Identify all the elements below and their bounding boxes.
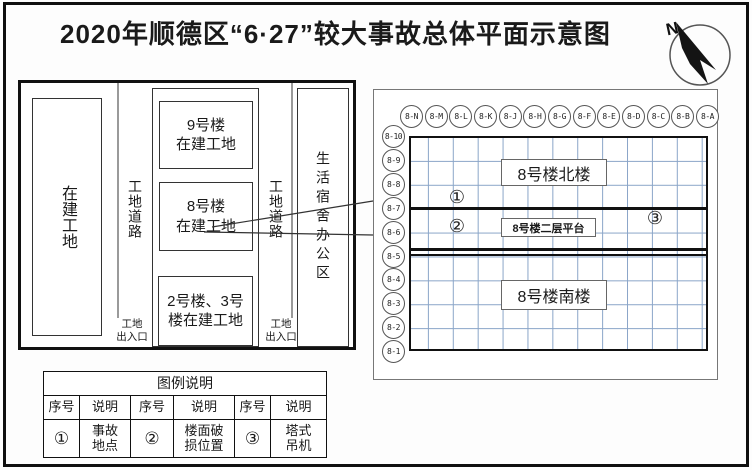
axis-bubble: 8-C [647, 105, 670, 128]
legend-header: 说明 [271, 396, 327, 420]
legend-header: 序号 [235, 396, 271, 420]
axis-bubble: 8-H [523, 105, 546, 128]
axis-bubble: 8-3 [382, 292, 405, 315]
legend-desc: 塔式 吊机 [271, 420, 327, 458]
right-road-label: 工地道路 [268, 179, 286, 239]
legend-header: 序号 [131, 396, 174, 420]
building-8-detail-panel: 8-N8-M8-L8-K8-J8-H8-G8-F8-E8-D8-C8-B8-A … [373, 89, 718, 380]
right-road-line [291, 83, 293, 318]
site-gate-right: 工地 出入口 [260, 318, 302, 343]
axis-bubble: 8-F [573, 105, 596, 128]
site-gate-left: 工地 出入口 [111, 318, 153, 343]
axis-bubble: 8-B [671, 105, 694, 128]
legend-symbol: ③ [235, 420, 271, 458]
axis-bubble: 8-5 [382, 245, 405, 268]
axis-bubble: 8-2 [382, 316, 405, 339]
left-construction-lot: 在建工地 [32, 98, 102, 336]
axis-bubble: 8-4 [382, 268, 405, 291]
axis-bubble: 8-E [597, 105, 620, 128]
axis-bubble: 8-A [696, 105, 719, 128]
legend-symbol: ① [44, 420, 80, 458]
legend-header: 说明 [80, 396, 131, 420]
north-building-label: 8号楼北楼 [501, 159, 607, 186]
building-8-lot: 8号楼 在建工地 [159, 182, 253, 251]
structural-grid: 8号楼北楼 ① ② 8号楼二层平台 ③ 8号楼南楼 [409, 136, 708, 351]
marker-accident-location: ① [446, 186, 468, 208]
north-compass: N [660, 8, 742, 94]
building-9-lot: 9号楼 在建工地 [159, 101, 253, 169]
legend-desc: 事故 地点 [80, 420, 131, 458]
axis-bubble: 8-G [548, 105, 571, 128]
axis-bubble: 8-D [622, 105, 645, 128]
compass-north-label: N [664, 18, 680, 39]
legend-table: 图例说明 序号 说明 序号 说明 序号 说明 ① 事故 地点 ② 楼面破 损位置… [43, 371, 327, 458]
south-building-label: 8号楼南楼 [501, 280, 607, 310]
axis-bubble: 8-9 [382, 149, 405, 172]
axis-bubble: 8-K [474, 105, 497, 128]
legend-desc: 楼面破 损位置 [174, 420, 235, 458]
legend-title: 图例说明 [44, 372, 327, 396]
platform-label: 8号楼二层平台 [501, 218, 596, 237]
left-road-label: 工地道路 [127, 179, 145, 239]
marker-tower-crane: ③ [644, 207, 666, 229]
dorm-office-area: 生活宿舍办公区 [297, 88, 349, 347]
section-divider-platform [411, 248, 706, 251]
axis-bubble: 8-L [449, 105, 472, 128]
compass-needle-icon [676, 22, 716, 84]
legend-header: 说明 [174, 396, 235, 420]
section-divider-south [411, 254, 706, 256]
legend-header: 序号 [44, 396, 80, 420]
axis-bubble: 8-10 [382, 125, 405, 148]
diagram-title: 2020年顺德区“6·27”较大事故总体平面示意图 [60, 14, 580, 51]
axis-bubble: 8-6 [382, 221, 405, 244]
axis-bubble: 8-8 [382, 173, 405, 196]
axis-bubble: 8-N [400, 105, 423, 128]
marker-floor-damage: ② [446, 215, 468, 237]
legend-symbol: ② [131, 420, 174, 458]
axis-bubble: 8-1 [382, 340, 405, 363]
axis-bubble: 8-7 [382, 197, 405, 220]
axis-bubble: 8-J [499, 105, 522, 128]
site-plan: 在建工地 工地道路 9号楼 在建工地 8号楼 在建工地 2号楼、3号 楼在建工地… [18, 80, 356, 350]
axis-bubble: 8-M [425, 105, 448, 128]
accident-site-diagram: 2020年顺德区“6·27”较大事故总体平面示意图 N 在建工地 工地道路 9号… [0, 0, 752, 470]
left-road-line [117, 83, 119, 318]
building-2-3-lot: 2号楼、3号 楼在建工地 [158, 276, 253, 346]
